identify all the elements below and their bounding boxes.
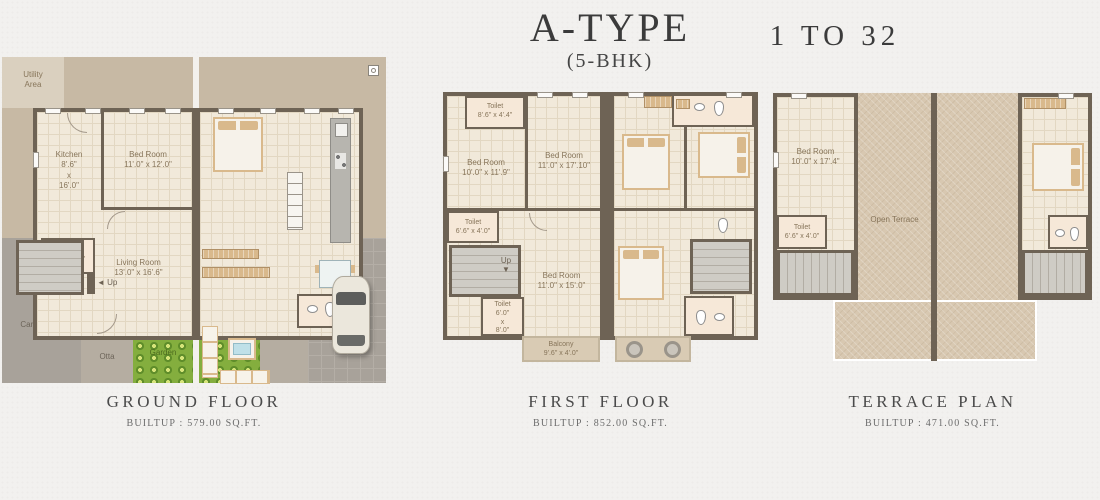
toilet-room: Toilet6'.6" x 4'.0" bbox=[777, 215, 827, 249]
party-wall bbox=[931, 93, 937, 361]
window bbox=[726, 92, 742, 98]
wardrobe-icon bbox=[644, 96, 672, 108]
garden-label: Garden bbox=[133, 348, 193, 358]
open-terrace-label: Open Terrace bbox=[858, 215, 931, 225]
toilet-room bbox=[684, 296, 734, 336]
partition-wall bbox=[684, 127, 687, 208]
window bbox=[572, 92, 588, 98]
shelf-icon bbox=[676, 99, 690, 109]
washbasin-icon bbox=[714, 313, 725, 321]
window bbox=[773, 152, 779, 168]
bed-icon bbox=[698, 132, 750, 178]
north-indicator-icon bbox=[368, 65, 379, 76]
staircase bbox=[690, 239, 752, 294]
up-label: Up▼ bbox=[496, 256, 516, 274]
staircase bbox=[777, 250, 854, 296]
balcony-label: Balcony9'.6" x 4'.0" bbox=[524, 341, 598, 359]
bedroom1-label: Bed Room10'.0" x 11'.9" bbox=[447, 158, 525, 179]
wc-icon bbox=[718, 218, 728, 233]
plan-title: GROUND FLOOR bbox=[2, 392, 386, 412]
washbasin-icon bbox=[694, 103, 705, 111]
bedroom-label: Bed Room11'.0" x 12'.0" bbox=[104, 150, 192, 171]
bed-icon bbox=[618, 246, 664, 300]
door-arc-icon bbox=[107, 211, 125, 229]
kitchen-label: Kitchen8'.6" x16'.0" bbox=[37, 150, 101, 192]
ground-floor-caption: GROUND FLOOR BUILTUP : 579.00 SQ.FT. bbox=[2, 392, 386, 429]
window bbox=[791, 93, 807, 99]
coffee-table-icon bbox=[228, 338, 256, 360]
car-icon bbox=[332, 276, 370, 354]
window bbox=[33, 152, 39, 168]
toilet-room bbox=[1048, 215, 1088, 249]
staircase bbox=[1022, 250, 1088, 296]
builtup-area: BUILTUP : 852.00 SQ.FT. bbox=[443, 418, 758, 429]
toilet-label: Toilet6'.6" x 4'.0" bbox=[779, 224, 825, 242]
window bbox=[260, 108, 276, 114]
open-terrace bbox=[858, 93, 1018, 300]
window bbox=[537, 92, 553, 98]
wardrobe-icon bbox=[1024, 98, 1066, 109]
ff-right-unit bbox=[610, 92, 758, 340]
unit-divider bbox=[193, 57, 199, 108]
window bbox=[338, 108, 354, 114]
sofa-icon bbox=[220, 370, 270, 384]
stair-entry-marker bbox=[87, 272, 95, 294]
bed-icon bbox=[213, 117, 263, 172]
wc-icon bbox=[696, 310, 706, 325]
sit-out-deck bbox=[615, 336, 691, 362]
terrace-plan-caption: TERRACE PLAN BUILTUP : 471.00 SQ.FT. bbox=[773, 392, 1092, 429]
builtup-area: BUILTUP : 579.00 SQ.FT. bbox=[2, 418, 386, 429]
window bbox=[1058, 93, 1074, 99]
unit-range: 1 TO 32 bbox=[760, 20, 910, 53]
toilet-label: Toilet6'.6" x 4'.0" bbox=[449, 219, 497, 237]
first-floor-plan: Toilet8'.6" x 4'.4" Bed Room10'.0" x 11'… bbox=[443, 92, 758, 364]
bathroom bbox=[672, 96, 754, 127]
window bbox=[165, 108, 181, 114]
utility-area: UtilityArea bbox=[2, 57, 64, 108]
wc-icon bbox=[1070, 227, 1079, 241]
ground-floor-plan: UtilityArea Car Parking Otta Garden Kitc… bbox=[2, 57, 386, 383]
otta-label: Otta bbox=[81, 352, 133, 362]
garden-left: Garden bbox=[133, 340, 193, 383]
washbasin-icon bbox=[307, 305, 318, 313]
up-label: ◄ Up bbox=[97, 278, 137, 287]
window bbox=[45, 108, 61, 114]
bed-icon bbox=[622, 134, 670, 190]
wardrobe-icon bbox=[202, 249, 259, 259]
door-arc-icon bbox=[67, 113, 87, 133]
toilet-room: Toilet8'.6" x 4'.4" bbox=[465, 96, 525, 129]
planter-icon bbox=[664, 341, 681, 358]
staircase bbox=[16, 240, 84, 295]
window bbox=[85, 108, 101, 114]
door-arc-icon bbox=[529, 213, 547, 231]
partition-wall bbox=[101, 207, 192, 210]
gf-left-unit: Kitchen8'.6" x16'.0" Bed Room11'.0" x 12… bbox=[33, 108, 196, 340]
sofa-icon bbox=[202, 326, 218, 378]
first-floor-caption: FIRST FLOOR BUILTUP : 852.00 SQ.FT. bbox=[443, 392, 758, 429]
window bbox=[628, 92, 644, 98]
toilet-room: Toilet6'.0" x8'.0" bbox=[481, 297, 524, 336]
otta-left: Otta bbox=[81, 340, 133, 383]
washbasin-icon bbox=[1055, 229, 1065, 237]
bedroom2-label: Bed Room11'.0" x 17'.10" bbox=[528, 151, 600, 172]
tp-left-unit: Bed Room10'.0" x 17'.4" Toilet6'.6" x 4'… bbox=[773, 93, 858, 300]
balcony: Balcony9'.6" x 4'.0" bbox=[522, 336, 600, 362]
wc-icon bbox=[714, 101, 724, 116]
door-arc-icon bbox=[97, 314, 117, 334]
tv-console-icon bbox=[202, 267, 270, 278]
page-title: A-TYPE bbox=[470, 4, 750, 51]
builtup-area: BUILTUP : 471.00 SQ.FT. bbox=[773, 418, 1092, 429]
terrace-plan: Open Terrace Bed Room10'.0" x 17'.4" Toi… bbox=[773, 93, 1092, 363]
window bbox=[304, 108, 320, 114]
staircase: Up▼ bbox=[449, 245, 521, 297]
bedroom-label: Bed Room10'.0" x 17'.4" bbox=[777, 147, 854, 168]
planter-icon bbox=[626, 341, 643, 358]
bedroom3-label: Bed Room11'.0" x 15'.0" bbox=[523, 271, 600, 292]
window bbox=[129, 108, 145, 114]
floor-plan-sheet: { "header": { "title": "A-TYPE", "subtit… bbox=[0, 0, 1100, 500]
toilet-room: Toilet6'.6" x 4'.0" bbox=[447, 211, 499, 243]
cabinet-icon bbox=[287, 172, 303, 230]
living-room-label: Living Room13'.0" x 16'.6" bbox=[85, 258, 192, 279]
utility-area-label: UtilityArea bbox=[2, 70, 64, 91]
ff-left-unit: Toilet8'.6" x 4'.4" Bed Room10'.0" x 11'… bbox=[443, 92, 604, 340]
plan-title: FIRST FLOOR bbox=[443, 392, 758, 412]
bed-icon bbox=[1032, 143, 1084, 191]
page-subtitle: (5-BHK) bbox=[470, 50, 750, 73]
window bbox=[218, 108, 234, 114]
toilet-label: Toilet6'.0" x8'.0" bbox=[483, 301, 522, 336]
plan-title: TERRACE PLAN bbox=[773, 392, 1092, 412]
toilet-label: Toilet8'.6" x 4'.4" bbox=[467, 103, 523, 121]
partition-wall bbox=[614, 208, 754, 211]
tp-right-unit bbox=[1018, 93, 1092, 300]
kitchen-counter-icon bbox=[330, 118, 351, 243]
window bbox=[443, 156, 449, 172]
